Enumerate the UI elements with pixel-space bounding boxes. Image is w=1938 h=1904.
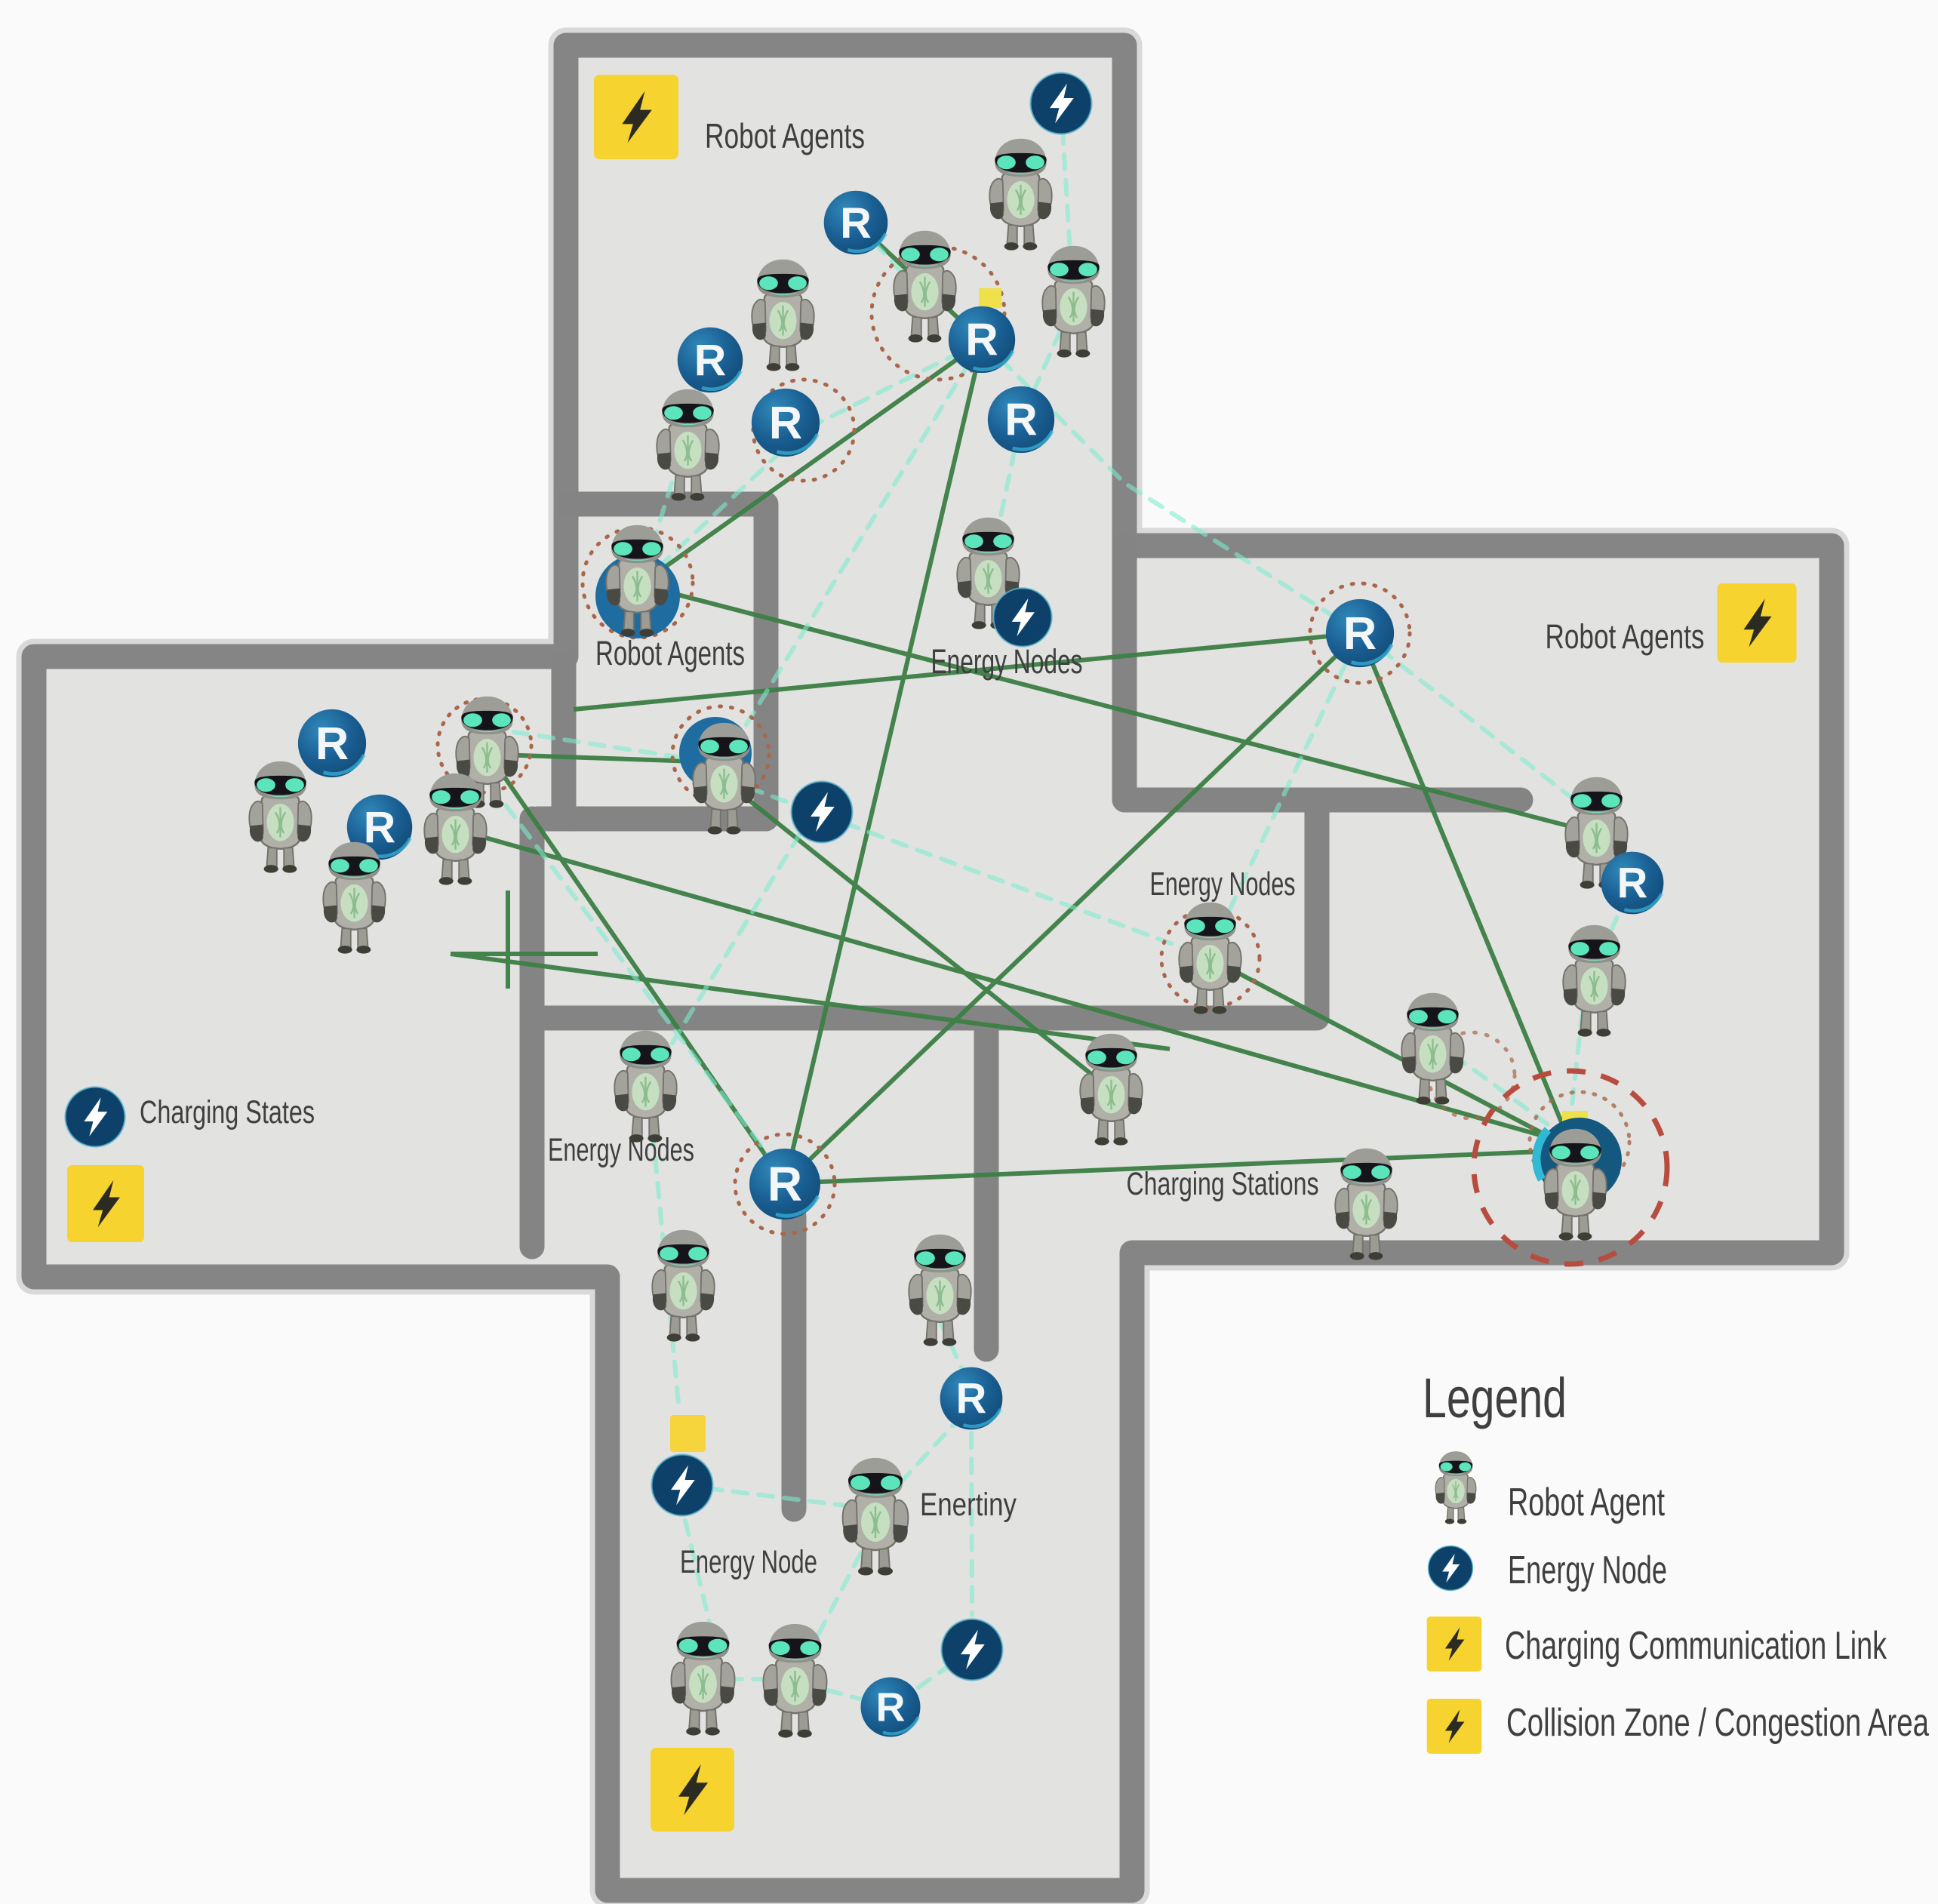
- svg-text:Energy Nodes: Energy Nodes: [1150, 866, 1296, 903]
- svg-text:Robot Agents: Robot Agents: [705, 116, 865, 155]
- svg-text:Legend: Legend: [1423, 1367, 1567, 1429]
- svg-text:Energy Node: Energy Node: [680, 1544, 817, 1580]
- svg-text:Robot Agents: Robot Agents: [595, 634, 745, 672]
- svg-text:Energy Node: Energy Node: [1508, 1549, 1667, 1592]
- svg-text:Energy Nodes: Energy Nodes: [931, 642, 1083, 681]
- svg-text:Enertiny: Enertiny: [920, 1487, 1017, 1523]
- svg-text:Collision Zone / Congestion Ar: Collision Zone / Congestion Area: [1506, 1701, 1929, 1745]
- svg-text:Robot Agents: Robot Agents: [1546, 617, 1705, 656]
- svg-text:Charging States: Charging States: [140, 1094, 315, 1130]
- svg-text:Charging Communication Link: Charging Communication Link: [1505, 1624, 1887, 1668]
- svg-text:Charging Stations: Charging Stations: [1127, 1166, 1319, 1202]
- svg-text:Robot Agent: Robot Agent: [1508, 1481, 1665, 1524]
- svg-text:Energy Nodes: Energy Nodes: [548, 1132, 694, 1168]
